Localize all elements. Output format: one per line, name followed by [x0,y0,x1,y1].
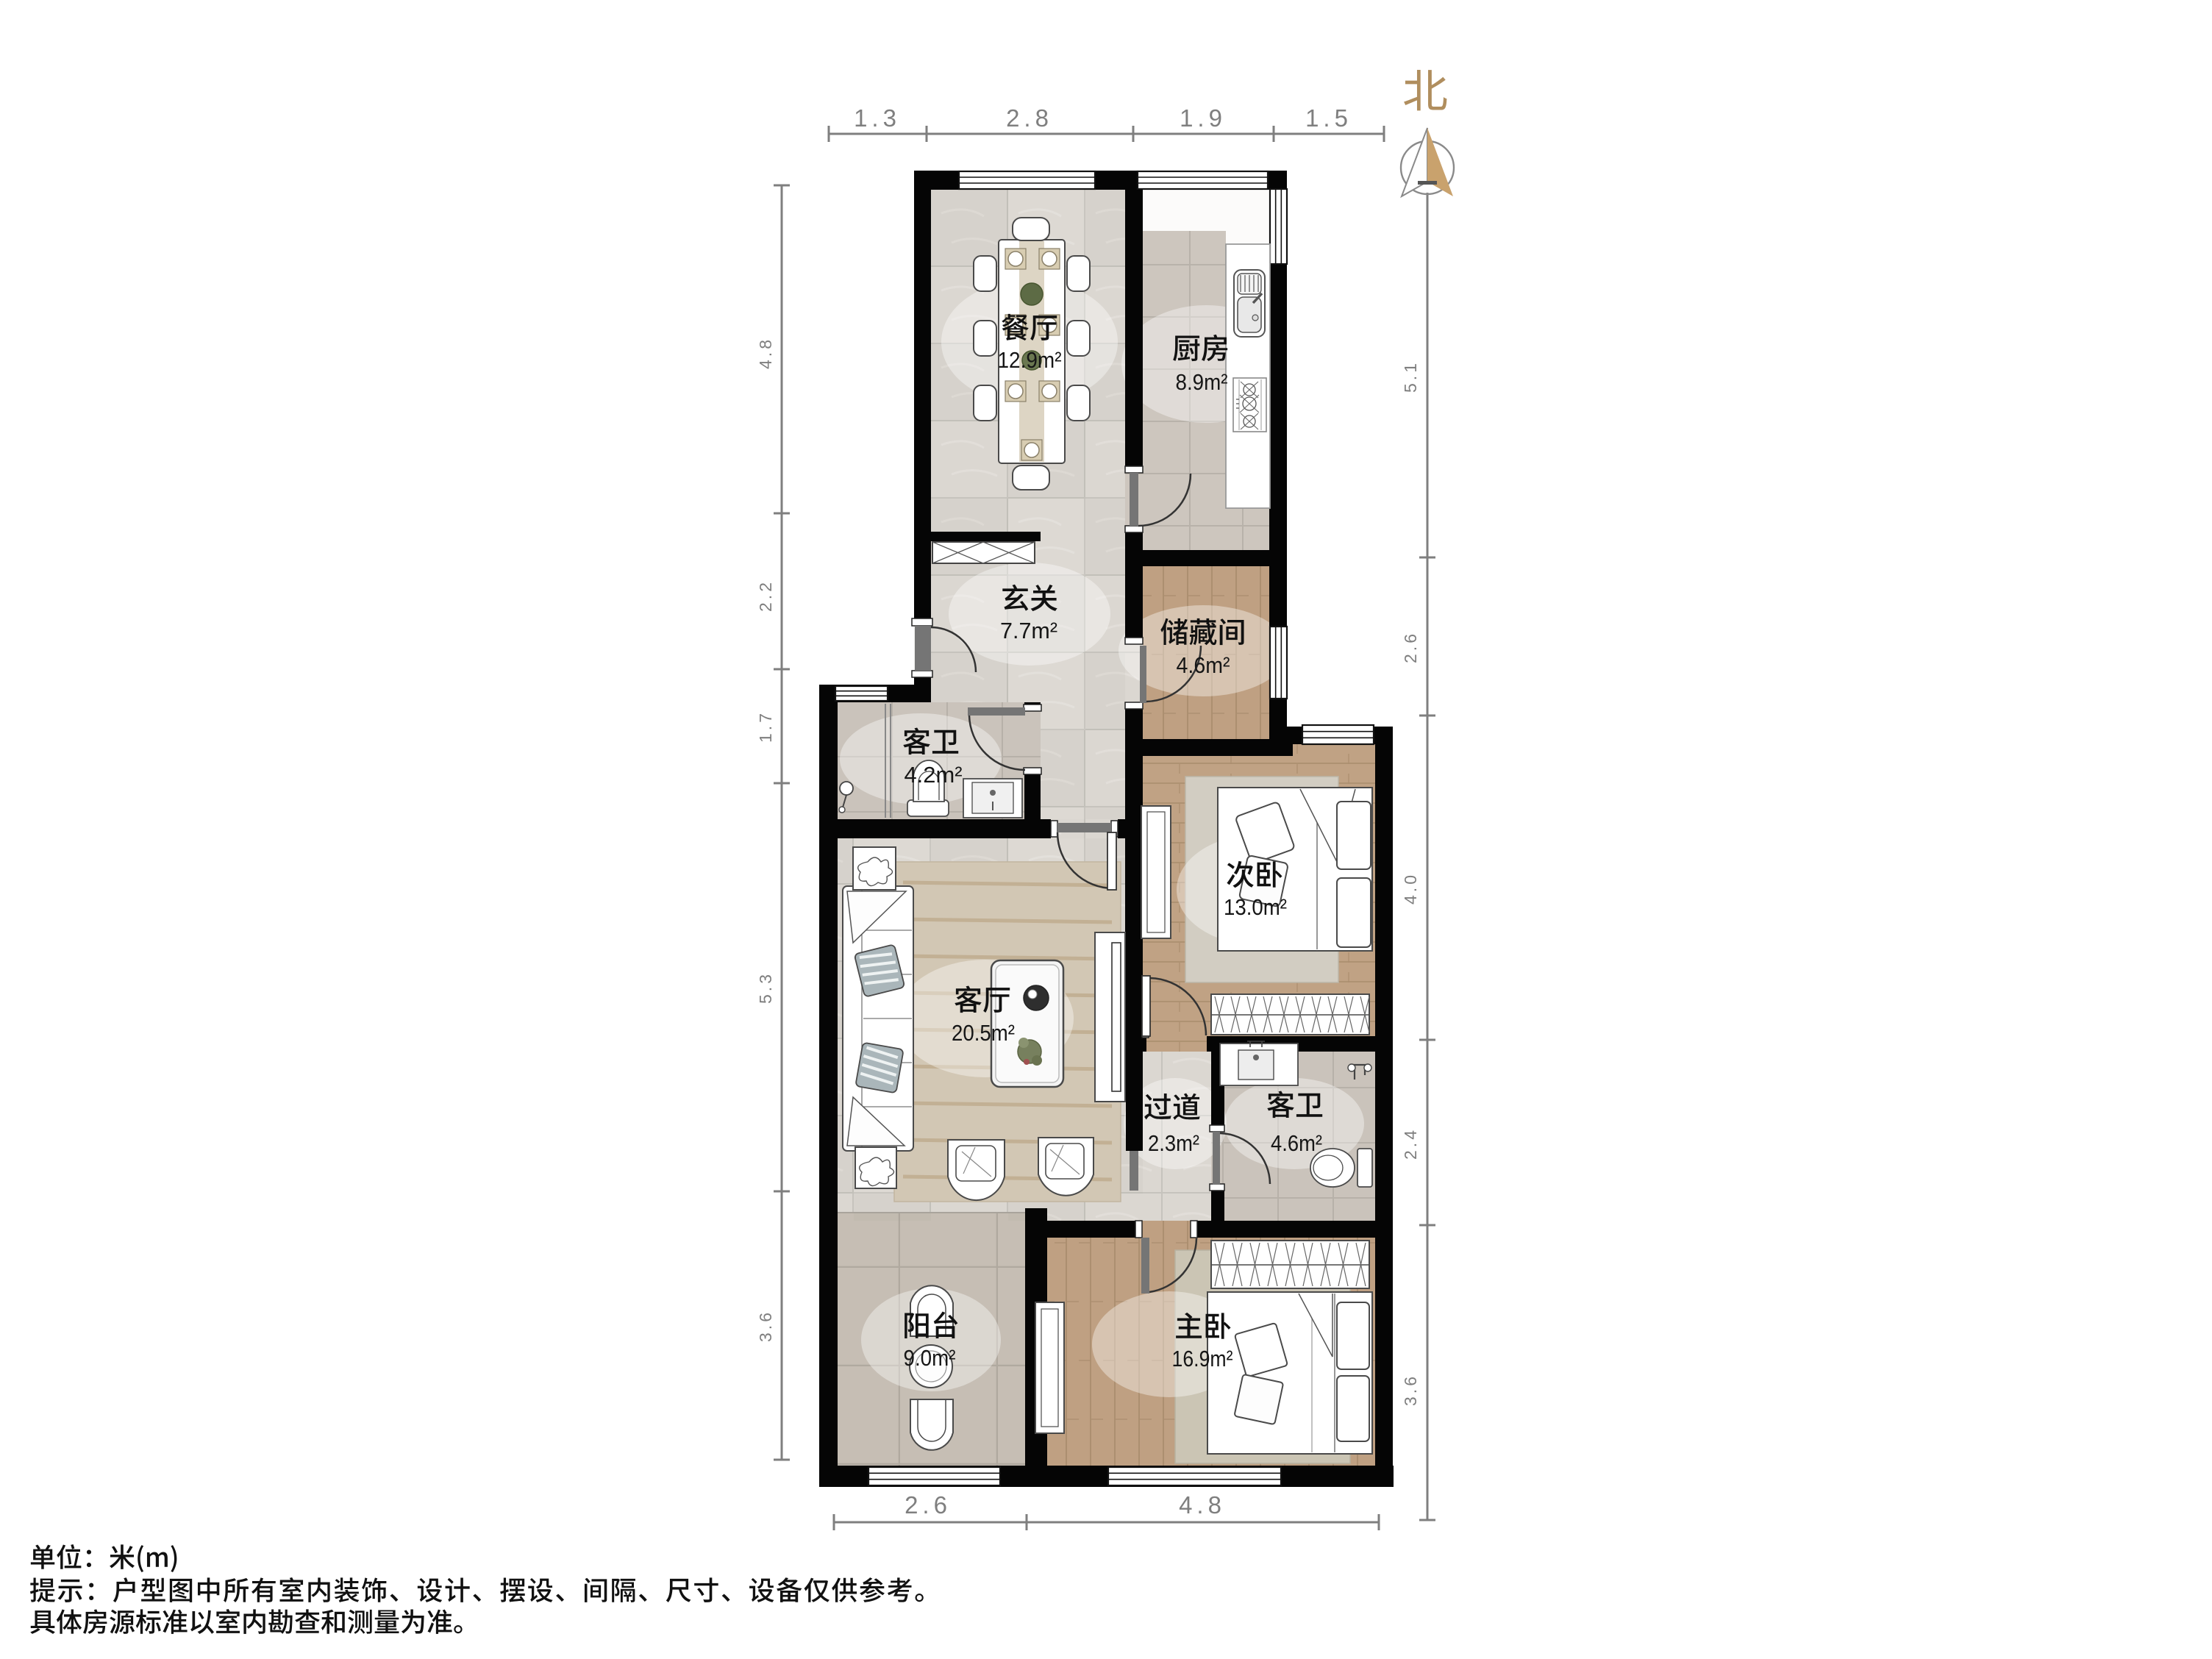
svg-text:4.6m²: 4.6m² [1271,1130,1322,1156]
svg-text:2.4: 2.4 [1401,1127,1420,1160]
svg-text:2.6: 2.6 [905,1491,952,1519]
svg-text:3.6: 3.6 [1401,1374,1420,1406]
svg-text:1.5: 1.5 [1305,104,1352,132]
svg-text:2.2: 2.2 [756,579,775,612]
svg-text:4.2m²: 4.2m² [905,762,963,788]
svg-text:1.9: 1.9 [1180,104,1227,132]
svg-text:4.8: 4.8 [1179,1491,1226,1519]
svg-text:5.3: 5.3 [756,971,775,1004]
svg-text:2.8: 2.8 [1006,104,1053,132]
svg-text:3.6: 3.6 [756,1310,775,1342]
svg-text:1.7: 1.7 [756,710,775,743]
svg-text:1.3: 1.3 [854,104,901,132]
svg-text:8.9m²: 8.9m² [1176,369,1228,395]
svg-text:2.6: 2.6 [1401,631,1420,663]
svg-text:7.7m²: 7.7m² [1000,618,1057,643]
svg-text:4.8: 4.8 [756,337,775,369]
svg-text:5.1: 5.1 [1401,360,1420,393]
svg-text:16.9m²: 16.9m² [1172,1346,1233,1371]
svg-text:9.0m²: 9.0m² [904,1345,956,1371]
svg-text:20.5m²: 20.5m² [952,1020,1015,1046]
svg-text:13.0m²: 13.0m² [1224,894,1287,920]
svg-text:2.3m²: 2.3m² [1148,1130,1199,1156]
svg-text:4.6m²: 4.6m² [1177,652,1230,678]
svg-text:4.0: 4.0 [1401,872,1420,905]
svg-text:12.9m²: 12.9m² [998,347,1062,373]
